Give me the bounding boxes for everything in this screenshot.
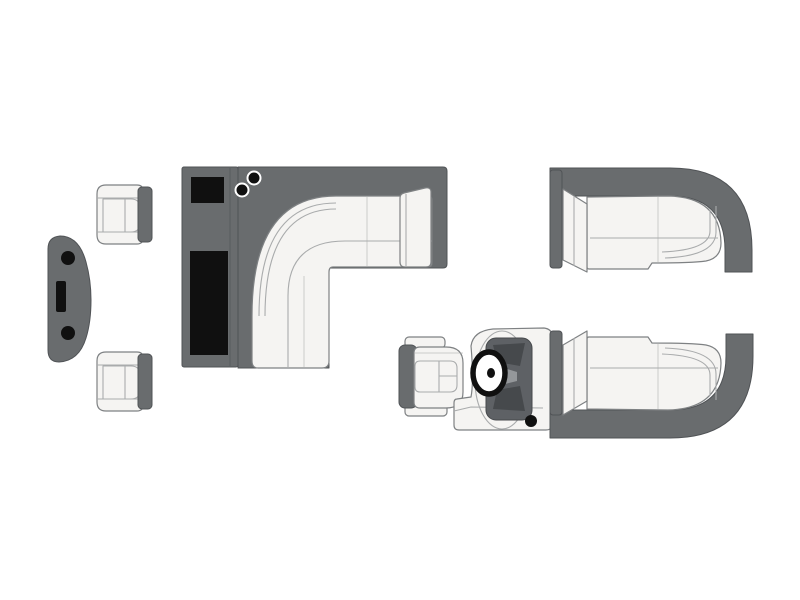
cupholder-icon	[248, 172, 261, 185]
gate-slot	[56, 281, 66, 312]
cleat-dot-icon	[61, 326, 75, 340]
starboard-bow-lounge	[550, 168, 752, 272]
lounge-cushion	[587, 337, 721, 410]
bow-platform	[48, 236, 91, 362]
port-chair-aft	[97, 352, 152, 411]
lounge-cushion	[587, 196, 721, 269]
galley-counter-small	[191, 177, 224, 203]
helm-console	[454, 328, 552, 430]
chair-backrest-bar	[138, 187, 152, 242]
galley-counter-long	[190, 251, 228, 355]
boat-floorplan-figure	[0, 0, 800, 600]
starboard-stern-lounge	[550, 331, 753, 438]
lounge-end-cap	[550, 170, 562, 268]
cleat-dot-icon	[61, 251, 75, 265]
chair-body	[97, 185, 143, 244]
chair-body	[97, 352, 143, 411]
lounge-armrest	[563, 331, 587, 415]
lounge-armrest	[563, 189, 587, 272]
chair-backrest-bar	[138, 354, 152, 409]
floorplan-canvas	[0, 0, 800, 600]
throttle-dot	[525, 415, 537, 427]
lounge-end-cap	[550, 331, 562, 415]
port-chair-fore	[97, 185, 152, 244]
cupholder-icon	[236, 184, 249, 197]
lounge-armrest	[400, 188, 431, 267]
steering-wheel-hub	[487, 368, 495, 378]
